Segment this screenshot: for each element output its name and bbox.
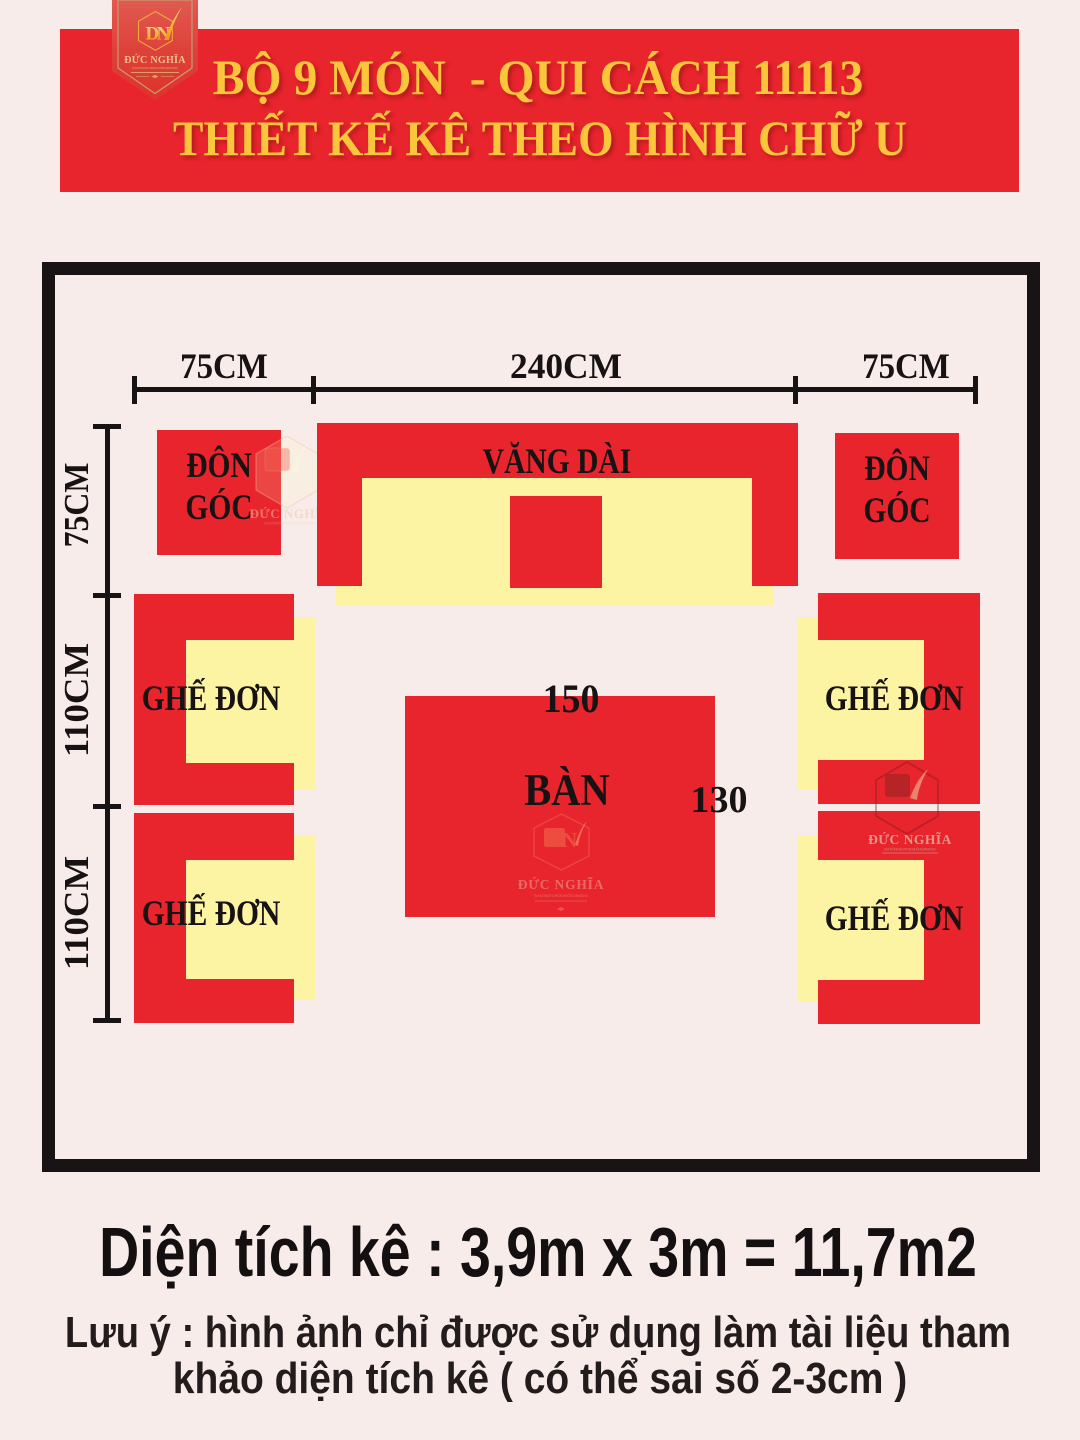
svg-text:ĐỨC NGHĨA: ĐỨC NGHĨA [518,877,605,892]
svg-text:SỰ HƯỞNG THỤ TRONG KHÔNG GIAN: SỰ HƯỞNG THỤ TRONG KHÔNG GIAN SỐNG [264,521,316,526]
svg-text:SỰ HƯỞNG THỤ TRONG KHÔNG GIAN: SỰ HƯỞNG THỤ TRONG KHÔNG GIAN SỐNG [534,893,588,898]
svg-text:N: N [562,828,577,852]
svg-text:ĐỨC NGHĨA: ĐỨC NGHĨA [868,832,952,847]
svg-text:ĐỨC NGHĨA: ĐỨC NGHĨA [124,54,186,66]
svg-text:SỰ HƯỞNG THỤ TRONG KHÔNG GIAN: SỰ HƯỞNG THỤ TRONG KHÔNG GIAN SỐNG [132,65,179,70]
svg-text:SỰ HƯỞNG THỤ TRONG KHÔNG GIAN: SỰ HƯỞNG THỤ TRONG KHÔNG GIAN SỐNG [884,847,936,852]
